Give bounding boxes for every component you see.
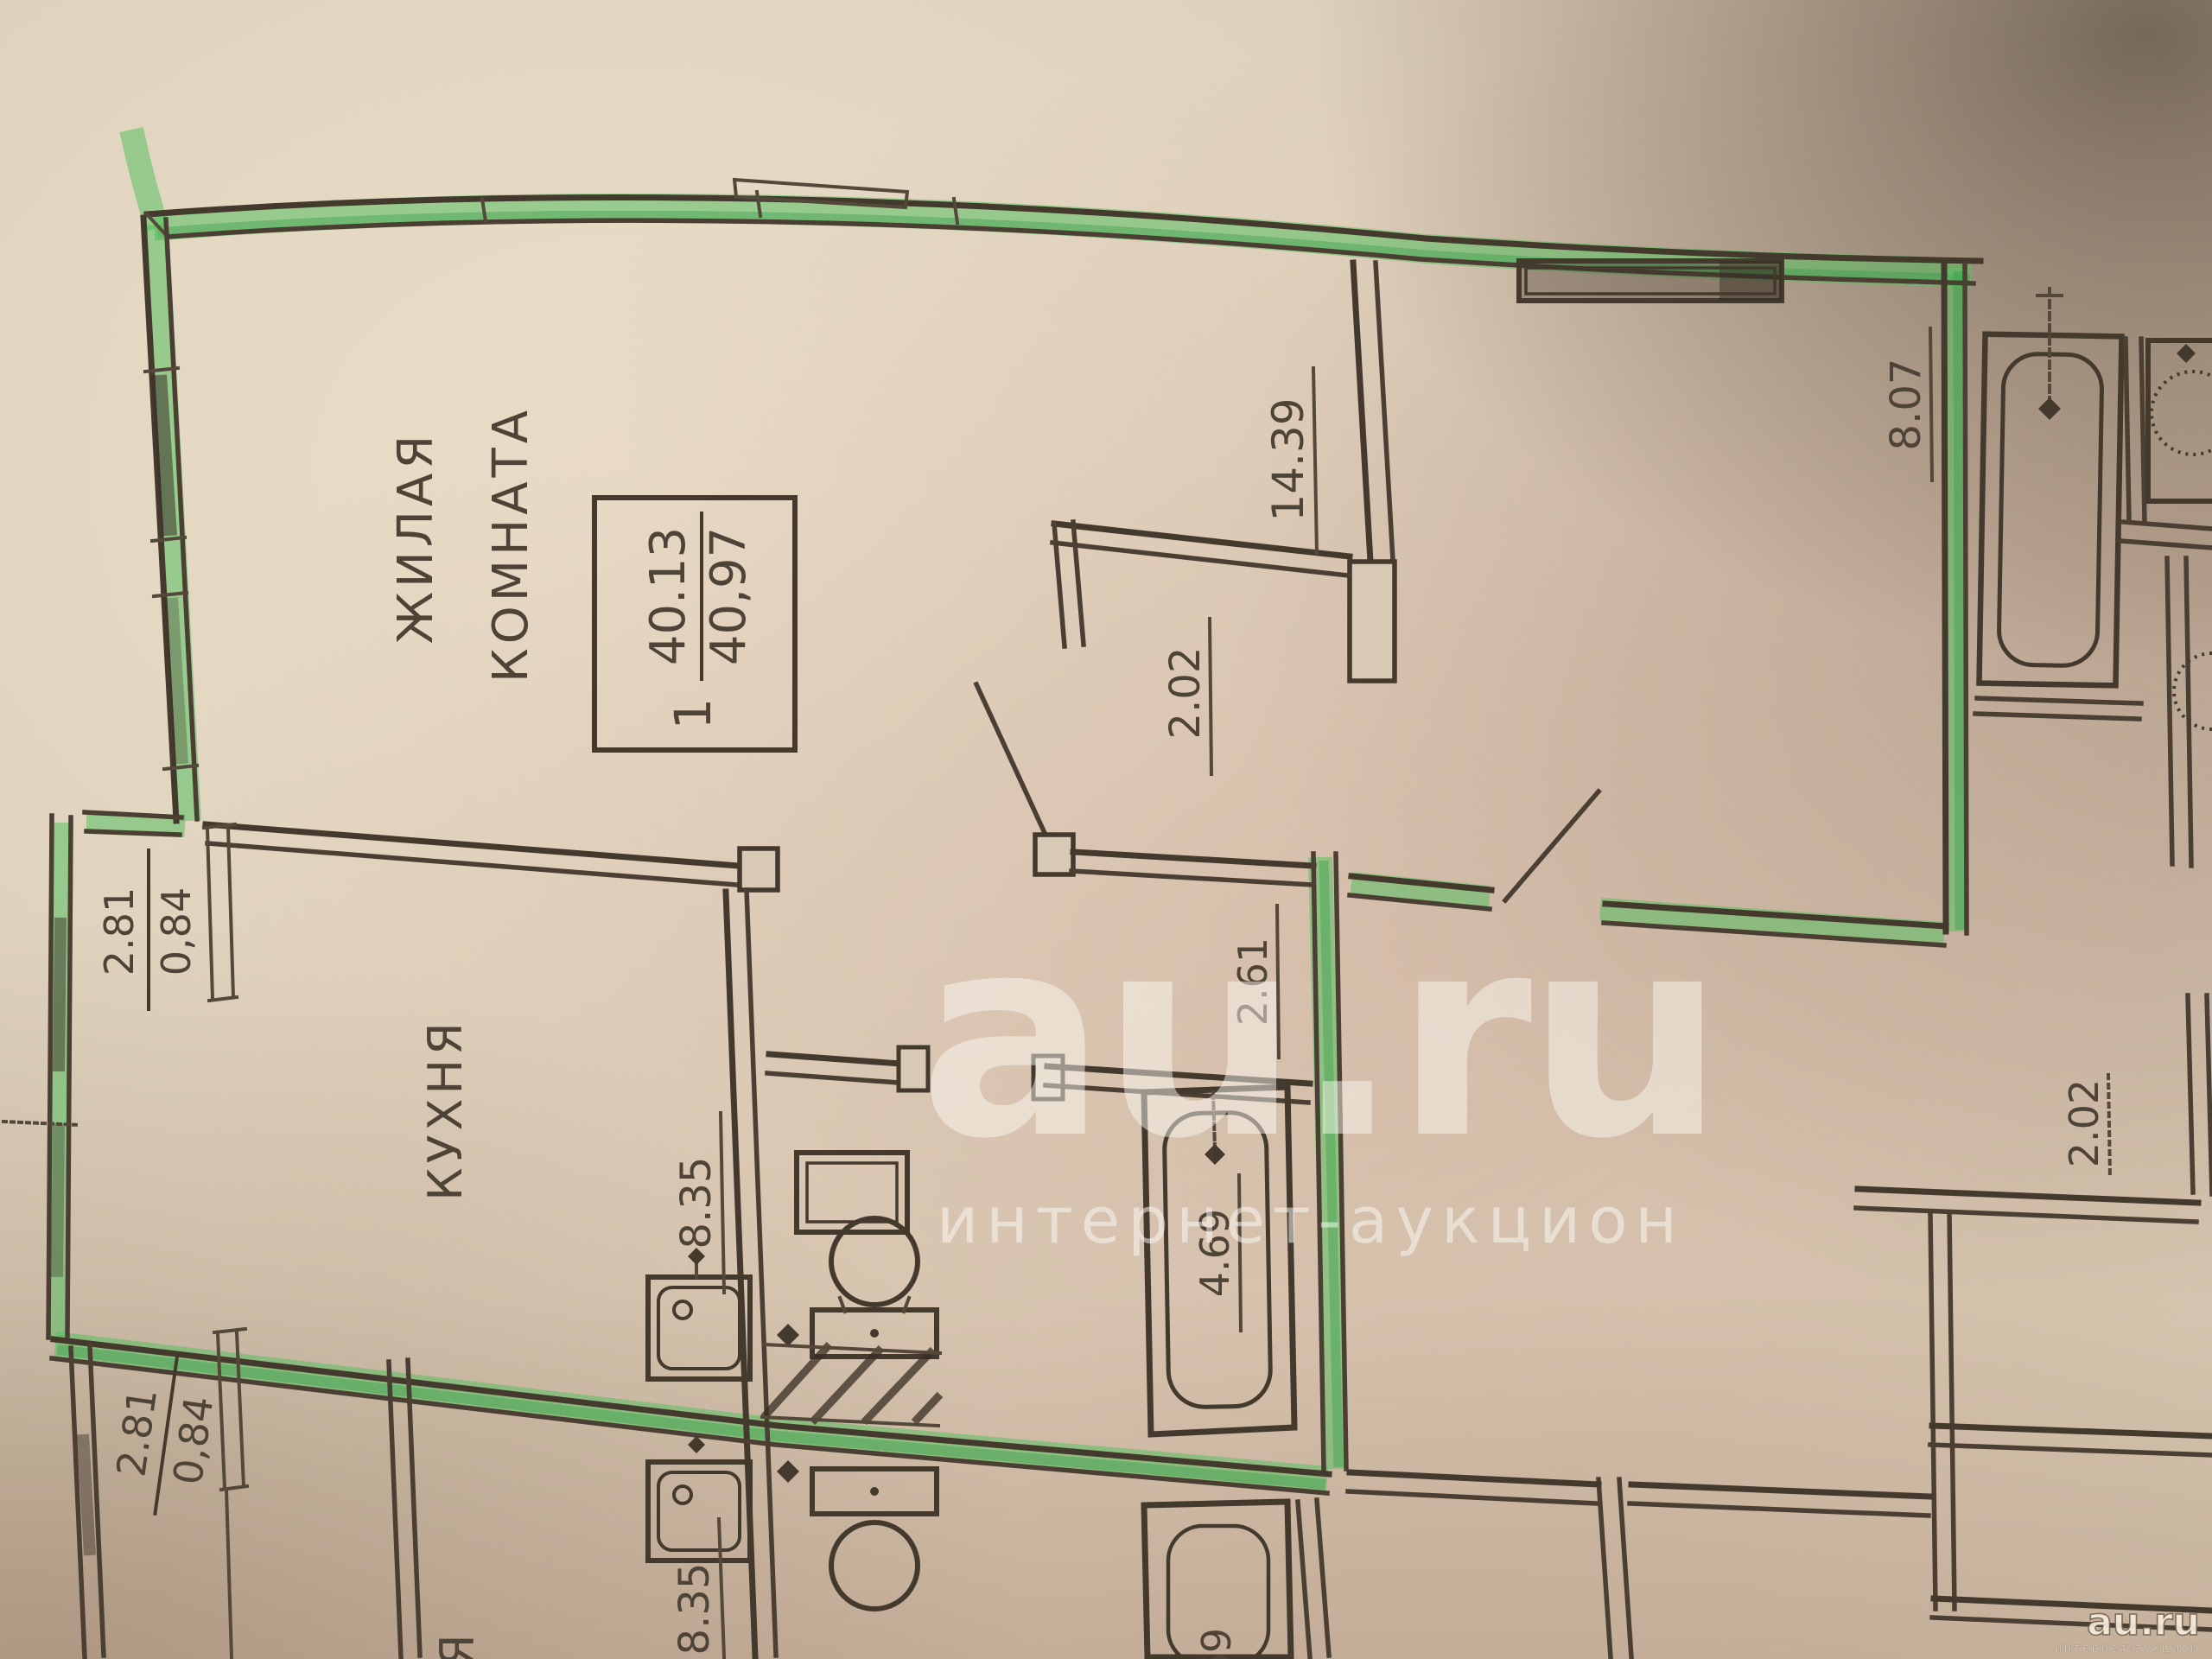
right-wall-outer (1944, 263, 1946, 931)
hall-door-pillar (1350, 562, 1395, 681)
kitchen2-label-partial: КУХНЯ (430, 1630, 485, 1659)
kitchen-area: 8.35 (672, 1157, 721, 1249)
corner-logo-brand: au.ru (2087, 1600, 2200, 1644)
kitchen-label: КУХНЯ (418, 1018, 473, 1200)
balcony1-window-2 (57, 1123, 59, 1277)
highlight-balcony-top (86, 823, 185, 826)
balcony1-width: 2.81 (96, 887, 143, 976)
paper-background (0, 0, 2212, 1659)
unit-area-lower: 40,97 (701, 527, 757, 665)
toilet-2-button (870, 1487, 879, 1496)
door-jamb-2 (1035, 835, 1073, 874)
door-jamb-1 (740, 849, 778, 890)
floorplan-svg: 1 40.13 40,97 ЖИЛАЯ КОМНАТА 14.39 2.02 8… (0, 0, 2212, 1659)
floorplan-photo: 1 40.13 40,97 ЖИЛАЯ КОМНАТА 14.39 2.02 8… (0, 0, 2212, 1659)
hall-area: 8.07 (1882, 359, 1930, 451)
balcony2-window (83, 1434, 90, 1555)
living-room-area: 14.39 (1263, 397, 1313, 521)
watermark: au.ru интернет-аукцион (919, 875, 1720, 1258)
left-window-1 (159, 375, 169, 536)
neighbor-corridor-area: 2.02 (2061, 1079, 2107, 1167)
closet-area-line (1210, 619, 1211, 774)
highlight-right-wall-core (1958, 271, 1960, 930)
living-room-label-1: ЖИЛАЯ (388, 431, 444, 645)
kitchen2-area-partial: 8.35 (671, 1563, 719, 1656)
watermark-tagline: интернет-аукцион (937, 1184, 1685, 1258)
paper-bottom-shade (0, 0, 2212, 1659)
unit-number: 1 (664, 698, 722, 730)
living-room-label-2: КОМНАТА (483, 406, 539, 683)
bath2-area-partial: 4.69 (1193, 1628, 1240, 1659)
watermark-brand: au.ru (919, 875, 1720, 1199)
unit-area-upper: 40.13 (640, 527, 696, 665)
balcony1-coef: 0,84 (153, 887, 200, 976)
hall-area-line (1930, 328, 1932, 480)
right-wall-inner (1965, 264, 1967, 933)
toilet-tank-button (870, 1329, 879, 1338)
closet-area: 2.02 (1161, 647, 1210, 740)
balcony1-window-1 (59, 918, 60, 1071)
corner-logo-tagline: интернет-аукцион (2054, 1642, 2200, 1656)
